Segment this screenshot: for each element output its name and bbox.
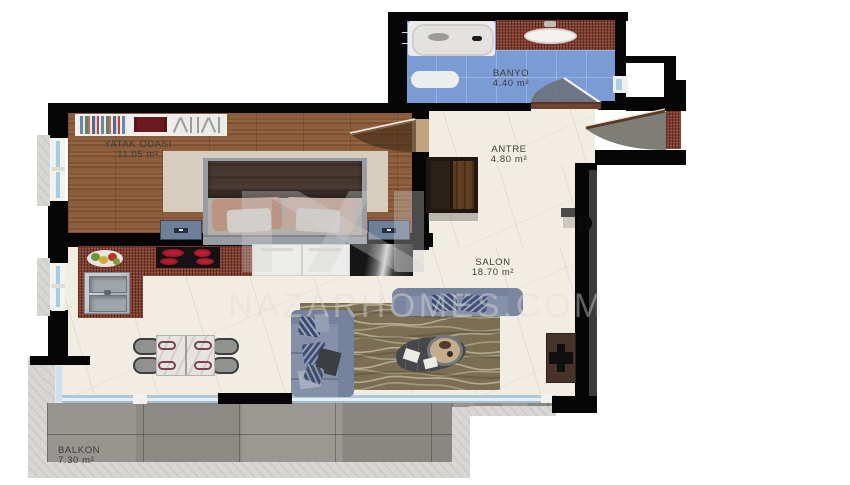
svg-text:NAZARHOMES.COM: NAZARHOMES.COM — [228, 287, 606, 325]
